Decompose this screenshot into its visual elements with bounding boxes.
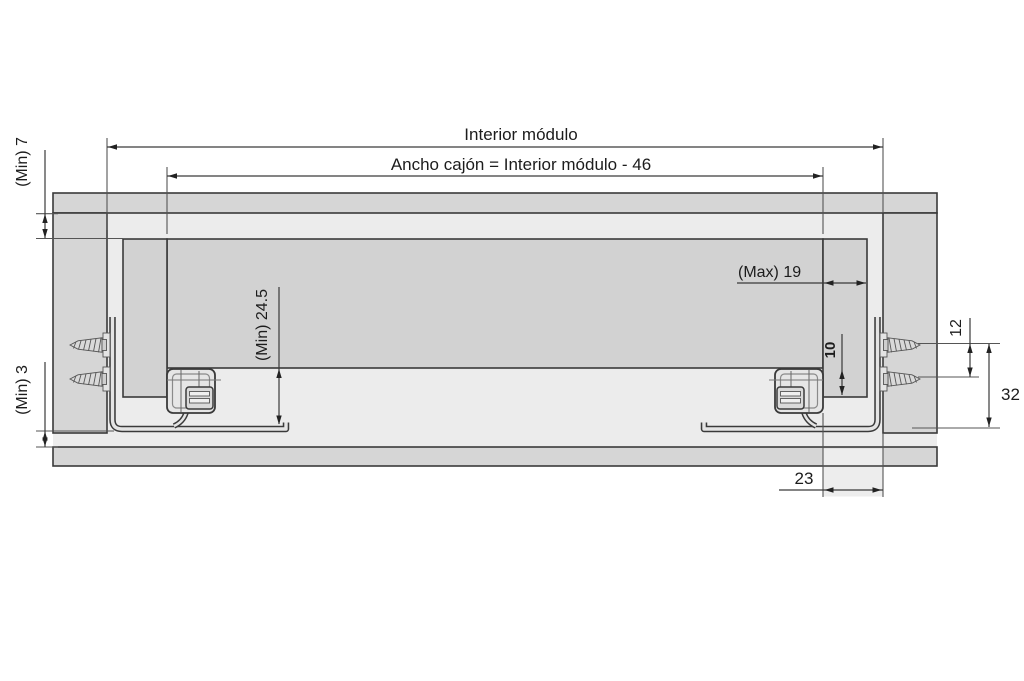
arrowhead-icon [42, 438, 47, 447]
bracket-clip-bar [190, 399, 210, 404]
dim-interior-modulo-label: Interior módulo [464, 125, 577, 144]
dim-10-label: 10 [822, 342, 839, 359]
arrowhead-icon [168, 173, 177, 178]
cabinet-bottom-panel [53, 447, 937, 466]
dim-ancho-cajon-label: Ancho cajón = Interior módulo - 46 [391, 155, 651, 174]
arrowhead-icon [813, 173, 822, 178]
technical-drawing-page: Interior módulo Ancho cajón = Interior m… [0, 0, 1024, 681]
arrowhead-icon [986, 344, 991, 353]
arrowhead-icon [42, 214, 47, 223]
arrowhead-icon [967, 368, 972, 377]
drawer-slide-installation-diagram: Interior módulo Ancho cajón = Interior m… [0, 0, 1024, 681]
dim-min-24-5-label: (Min) 24.5 [254, 289, 271, 361]
cabinet-top-panel [53, 193, 937, 213]
arrowhead-icon [873, 144, 882, 149]
cabinet-right-side-panel [883, 213, 937, 433]
dim-max-19-label: (Max) 19 [738, 264, 801, 281]
dim-23-label: 23 [795, 469, 814, 488]
dim-min-7-label: (Min) 7 [14, 137, 31, 187]
drawer-right-side-board [823, 239, 867, 397]
dim-32-label: 32 [1001, 385, 1020, 404]
dim-min-3-label: (Min) 3 [14, 365, 31, 415]
drawer-left-side-board [123, 239, 167, 397]
arrowhead-icon [108, 144, 117, 149]
bracket-clip-bar [190, 392, 210, 397]
screw-head [102, 340, 107, 351]
arrowhead-icon [967, 344, 972, 353]
arrowhead-icon [42, 229, 47, 238]
bracket-clip [186, 387, 213, 409]
dim-12-label: 12 [948, 319, 965, 337]
arrowhead-icon [986, 418, 991, 427]
cabinet-left-side-panel [53, 213, 107, 433]
